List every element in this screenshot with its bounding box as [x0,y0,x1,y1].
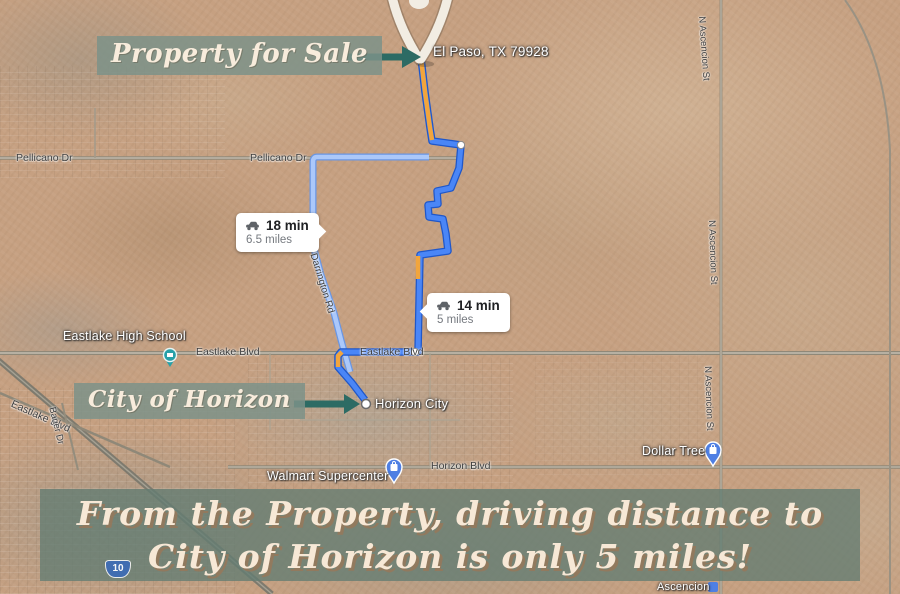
road-label-eastlake-2: Eastlake Blvd [360,346,424,358]
footer-line-1: From the Property, driving distance to [77,493,823,534]
distance-alternate: 6.5 miles [246,234,309,246]
poi-label-ascencion[interactable]: Ascencion [657,581,710,593]
poi-label-horizon-city[interactable]: Horizon City [375,396,448,411]
road-label-eastlake-1: Eastlake Blvd [196,346,260,358]
footer-line-2: City of Horizon is only 5 miles! [148,536,752,577]
school-pin[interactable] [164,349,177,368]
duration-alternate: 18 min [266,218,309,233]
road-label-ascencion-2: N Ascencion St [706,220,719,285]
property-address-label: El Paso, TX 79928 [433,44,549,59]
road-label-ascencion-3: N Ascencion St [702,366,715,431]
dollar-tree-pin[interactable] [705,442,721,466]
directions-box-primary[interactable]: 14 min 5 miles [427,293,510,332]
road-label-horizon-blvd: Horizon Blvd [431,460,491,472]
road-label-pellicano-2: Pellicano Dr [250,152,307,164]
map-canvas[interactable]: El Paso, TX 79928 Pellicano Dr Pellicano… [0,0,900,594]
interstate-10-shield: 10 [105,560,131,578]
poi-label-walmart[interactable]: Walmart Supercenter [267,469,388,483]
route-alternate[interactable] [313,157,429,372]
footer-banner: From the Property, driving distance to C… [40,489,860,581]
property-for-sale-banner: Property for Sale [97,36,382,75]
city-of-horizon-banner: City of Horizon [74,383,305,419]
poi-label-dollar-tree[interactable]: Dollar Tree [642,444,705,458]
poi-label-eastlake-high-school[interactable]: Eastlake High School [63,329,186,343]
car-icon [435,300,452,312]
distance-primary: 5 miles [437,314,500,326]
duration-primary: 14 min [457,298,500,313]
road-label-pellicano-1: Pellicano Dr [16,152,73,164]
horizon-city-dot[interactable] [362,400,371,409]
directions-box-alternate[interactable]: 18 min 6.5 miles [236,213,319,252]
car-icon [244,220,261,232]
